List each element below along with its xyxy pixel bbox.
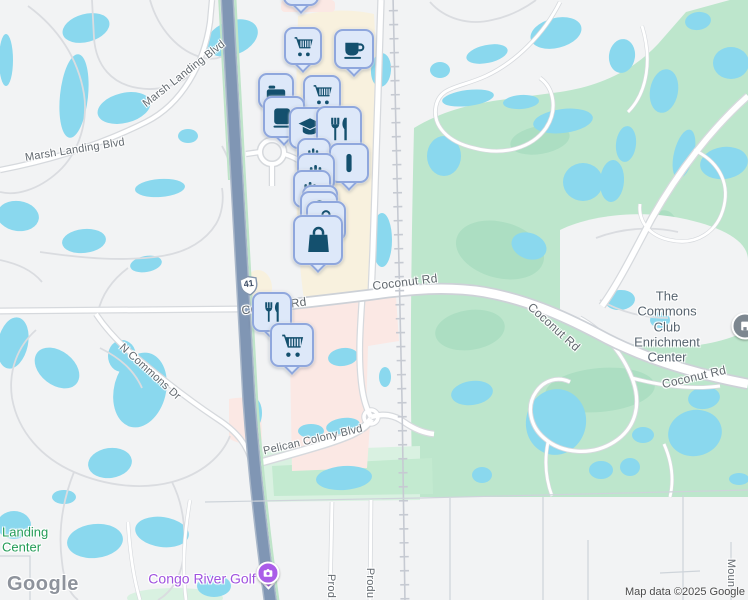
shopping-bag-marker[interactable] (293, 215, 343, 265)
map-attribution: Map data ©2025 Google (625, 586, 745, 598)
coffee-cup-marker[interactable] (334, 29, 374, 69)
landing-center-label[interactable]: LandingCenter (2, 525, 48, 556)
road-label: Moun (725, 559, 737, 587)
commons-club-label[interactable]: The Commons ClubEnrichment Center (627, 289, 708, 366)
poi-icon (732, 313, 748, 340)
poi-label-line: Enrichment Center (634, 335, 700, 365)
shopping-cart-marker[interactable] (283, 0, 319, 6)
attraction-icon (257, 562, 280, 585)
google-logo[interactable]: Google (7, 573, 79, 596)
enrichment-center-poi-pin[interactable] (732, 313, 748, 340)
map-canvas[interactable]: 41 Marsh Landing BlvdMarsh Landing BlvdN… (0, 0, 748, 600)
coffee-cup-icon (341, 36, 367, 62)
shopping-cart-icon (310, 82, 335, 107)
building-icon (739, 320, 748, 333)
shopping-cart-marker[interactable] (270, 323, 314, 367)
camera-icon (262, 567, 275, 580)
poi-label-line: The Commons Club (637, 289, 696, 335)
road-label: Produ (364, 568, 376, 598)
shopping-cart-marker[interactable] (284, 27, 322, 65)
congo-river-golf-label[interactable]: Congo River Golf (148, 571, 255, 588)
poi-label-line: Center (2, 540, 41, 555)
shopping-bag-icon (302, 224, 335, 257)
shopping-cart-icon (278, 331, 307, 360)
poi-label-line: Landing (2, 525, 48, 540)
congo-river-golf-poi-pin[interactable] (257, 562, 280, 585)
poi-label-line: Congo River Golf (148, 571, 255, 587)
shopping-cart-icon (291, 34, 316, 59)
bottle-icon (336, 150, 362, 176)
bottle-marker[interactable] (329, 143, 369, 183)
road-label: Prod (325, 574, 337, 598)
restaurant-icon (259, 299, 285, 325)
